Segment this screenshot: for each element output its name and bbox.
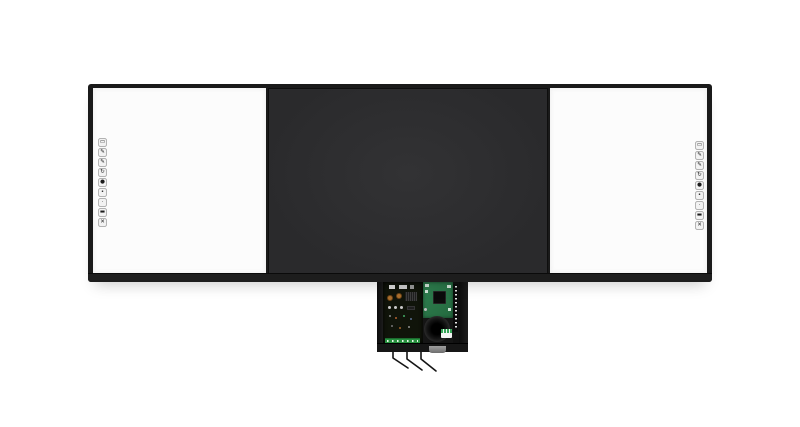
pen-size-medium-icon: • [696, 192, 703, 199]
connector [389, 285, 395, 289]
pen-alt-icon: ✎ [696, 162, 703, 169]
component-dot [403, 315, 405, 317]
solder-pad [447, 285, 451, 288]
pen-alt-icon: ✎ [99, 159, 106, 166]
pen-size-small-icon: · [696, 202, 703, 209]
component-dot [389, 315, 391, 317]
connector [410, 285, 414, 289]
capacitor [388, 306, 391, 309]
refresh-icon: ↻ [99, 169, 106, 176]
display-icon: ▭ [696, 142, 703, 149]
transformer-coil [396, 293, 402, 299]
pen-size-small-icon: · [99, 199, 106, 206]
component-dot [399, 327, 401, 329]
eraser-icon: ▬ [99, 209, 106, 216]
right-tool-strip: ▭ ✎ ✎ ↻ ● • · ▬ ✕ [696, 142, 703, 229]
close-icon: ✕ [99, 219, 106, 226]
module-right-bracket [459, 278, 468, 352]
pen-icon: ✎ [99, 149, 106, 156]
power-board [383, 282, 423, 343]
terminal-pins [387, 340, 418, 342]
component-dot [408, 326, 410, 328]
component-dot [410, 318, 412, 320]
left-whiteboard-panel: ▭ ✎ ✎ ↻ ● • · ▬ ✕ [93, 88, 266, 273]
whiteboard-product-image: ▭ ✎ ✎ ↻ ● • · ▬ ✕ ▭ ✎ ✎ ↻ ● • · ▬ [0, 0, 800, 427]
right-whiteboard-panel: ▭ ✎ ✎ ↻ ● • · ▬ ✕ [550, 88, 707, 273]
component-dot [391, 325, 393, 327]
capacitor [394, 306, 397, 309]
pen-size-medium-icon: • [99, 189, 106, 196]
wire [421, 352, 436, 371]
refresh-icon: ↻ [696, 172, 703, 179]
screw [424, 308, 427, 311]
pen-size-large-icon: ● [696, 182, 703, 189]
sticker-stripes [441, 329, 452, 333]
display-icon: ▭ [99, 139, 106, 146]
solder-pad [425, 290, 428, 293]
component-dot [395, 317, 397, 319]
left-tool-strip: ▭ ✎ ✎ ↻ ● • · ▬ ✕ [99, 139, 106, 226]
heatsink [405, 292, 417, 301]
eraser-icon: ▬ [696, 212, 703, 219]
bottom-frame-rail [88, 273, 712, 282]
ic-chip [407, 306, 415, 310]
center-display-screen [268, 88, 548, 277]
capacitor [400, 306, 403, 309]
transformer-coil [387, 295, 393, 301]
solder-pad [425, 284, 429, 287]
wire [407, 352, 422, 370]
pin-row [455, 286, 457, 330]
pin-header [453, 284, 458, 332]
close-icon: ✕ [696, 222, 703, 229]
connector [399, 285, 407, 289]
solder-pad [448, 308, 451, 311]
label-sticker [441, 329, 452, 338]
pen-icon: ✎ [696, 152, 703, 159]
processor-chip [433, 291, 446, 304]
cables [370, 350, 480, 378]
main-board [423, 282, 453, 318]
whiteboard-frame: ▭ ✎ ✎ ↻ ● • · ▬ ✕ ▭ ✎ ✎ ↻ ● • · ▬ [88, 84, 712, 282]
pen-size-large-icon: ● [99, 179, 106, 186]
wire [393, 352, 408, 368]
